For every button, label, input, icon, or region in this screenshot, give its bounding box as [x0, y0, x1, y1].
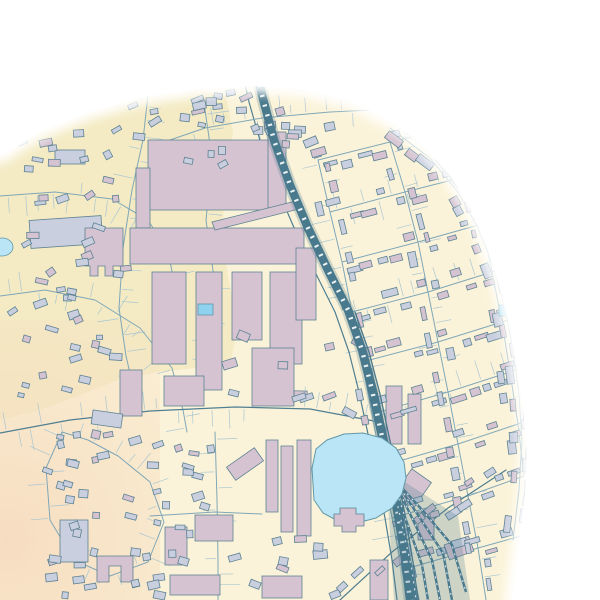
building: [509, 432, 518, 443]
building: [207, 445, 215, 453]
building: [195, 515, 233, 541]
building: [48, 110, 58, 117]
building: [435, 134, 444, 143]
building: [218, 146, 225, 154]
building: [91, 430, 101, 440]
building: [136, 168, 150, 228]
building: [48, 159, 60, 166]
building: [281, 122, 290, 129]
building: [169, 550, 176, 558]
building: [130, 228, 304, 264]
building: [164, 376, 204, 406]
building: [109, 353, 122, 361]
building: [313, 543, 323, 552]
map-canvas[interactable]: [0, 0, 600, 600]
building: [147, 462, 159, 469]
building: [113, 270, 123, 278]
building: [262, 576, 302, 598]
building: [499, 393, 507, 404]
building: [154, 519, 162, 526]
building: [361, 415, 369, 425]
building: [130, 548, 140, 557]
building: [462, 145, 470, 158]
building: [65, 495, 74, 503]
building: [120, 370, 142, 416]
building: [252, 348, 294, 406]
building: [471, 158, 483, 168]
building: [133, 133, 145, 141]
building: [408, 394, 421, 444]
building: [278, 362, 288, 370]
building: [142, 553, 150, 561]
building: [180, 113, 190, 121]
building: [97, 335, 103, 339]
building: [162, 501, 169, 509]
building: [266, 440, 278, 512]
building: [396, 196, 405, 204]
building: [90, 548, 98, 557]
building: [41, 109, 53, 119]
building: [18, 392, 25, 397]
building: [370, 560, 388, 600]
building: [73, 431, 81, 438]
building: [73, 130, 84, 138]
building: [297, 440, 311, 536]
building: [27, 232, 39, 238]
building: [39, 372, 47, 380]
building: [93, 512, 100, 518]
building: [74, 562, 85, 568]
building: [49, 555, 62, 564]
building: [112, 195, 119, 202]
building: [67, 288, 77, 295]
building: [215, 115, 224, 123]
building: [56, 286, 65, 292]
building: [497, 371, 505, 384]
building: [474, 172, 482, 186]
building: [206, 98, 216, 106]
building: [455, 162, 471, 173]
building: [73, 576, 85, 584]
building: [57, 434, 65, 440]
building: [62, 592, 69, 599]
building: [232, 272, 262, 340]
building: [451, 129, 462, 136]
building: [281, 446, 293, 532]
building: [170, 575, 220, 595]
building: [196, 272, 222, 390]
building: [91, 340, 99, 348]
building: [324, 122, 335, 132]
map-viewport[interactable]: [0, 0, 600, 600]
building: [216, 66, 225, 74]
building: [484, 559, 491, 567]
building: [296, 248, 316, 320]
building: [208, 151, 214, 158]
building: [324, 342, 334, 351]
building: [198, 122, 206, 128]
building: [57, 440, 65, 449]
building: [120, 265, 131, 271]
building: [446, 447, 455, 458]
building: [278, 557, 288, 566]
building: [294, 536, 306, 543]
building: [431, 280, 439, 289]
building: [131, 579, 140, 587]
building: [440, 130, 449, 143]
building: [287, 134, 299, 140]
building: [39, 195, 49, 201]
building: [24, 166, 33, 173]
building: [175, 525, 185, 530]
building: [511, 471, 517, 483]
building: [48, 145, 57, 152]
building: [45, 573, 58, 582]
building: [150, 108, 158, 114]
building: [189, 451, 200, 457]
building: [187, 530, 194, 538]
building: [152, 272, 186, 364]
building: [76, 258, 89, 266]
pool-2: [198, 304, 213, 315]
building: [236, 107, 246, 114]
building: [79, 489, 89, 498]
building: [349, 272, 356, 281]
